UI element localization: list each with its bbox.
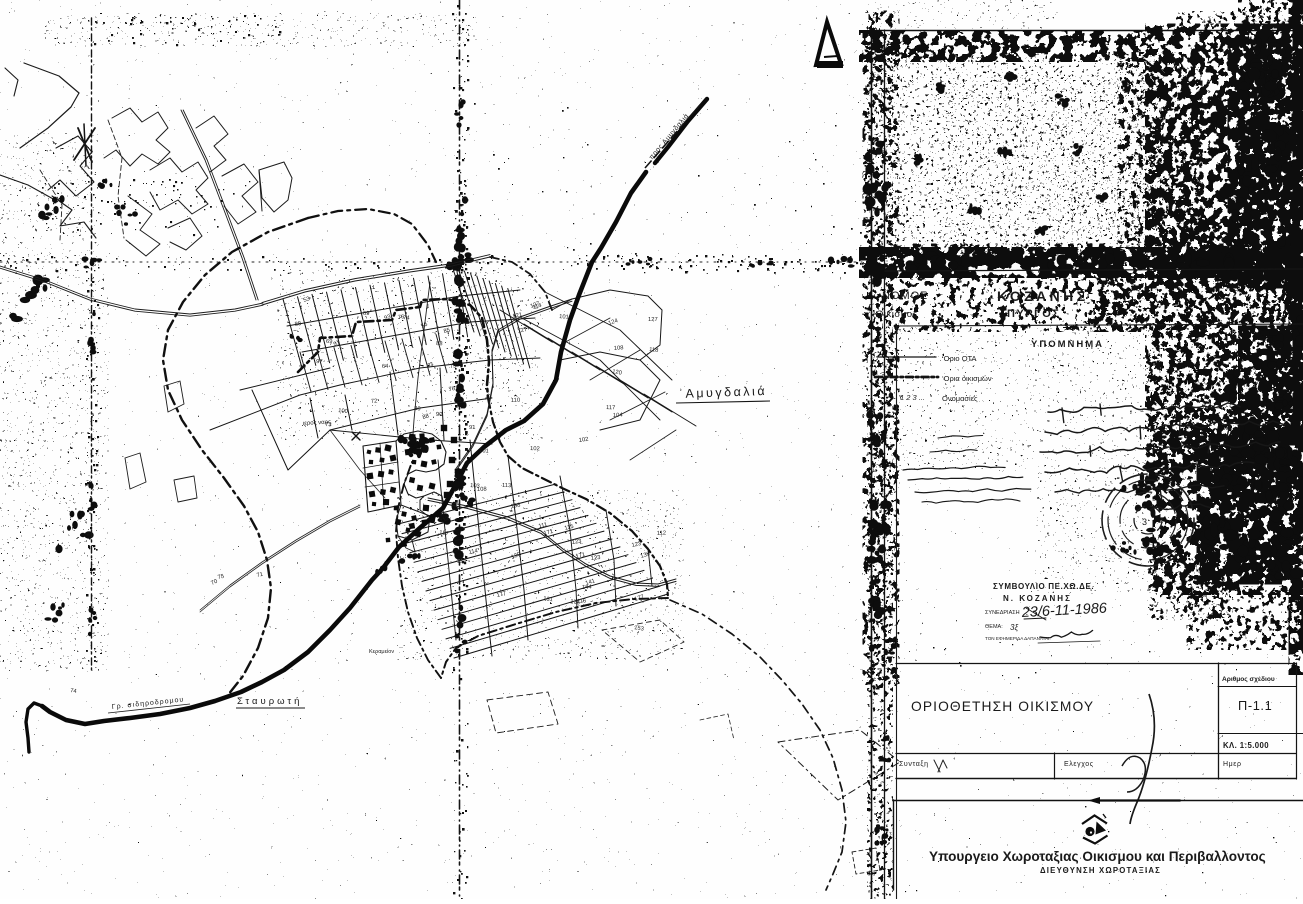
svg-text:ΟΡΙΟΘΕΤΗΣΗ ΟΙΚΙΣΜΟΥ: ΟΡΙΟΘΕΤΗΣΗ ΟΙΚΙΣΜΟΥ <box>911 699 1094 714</box>
svg-text:ΣΥΝΕΔΡΙΑΣΗ: ΣΥΝΕΔΡΙΑΣΗ <box>985 610 1020 616</box>
svg-text:ΠΥΡΓΟΣ: ΠΥΡΓΟΣ <box>1007 308 1060 320</box>
svg-text:90: 90 <box>436 412 443 418</box>
svg-text:Συνταξη: Συνταξη <box>899 761 929 768</box>
svg-text:110: 110 <box>511 398 520 404</box>
svg-text:88: 88 <box>436 341 443 347</box>
svg-text:‘Ορια οικισμών: ‘Ορια οικισμών <box>942 374 992 383</box>
svg-text:ΣΥΜΒΟΥΛΙΟ ΠΕ.ΧΩ.ΔΕ.: ΣΥΜΒΟΥΛΙΟ ΠΕ.ΧΩ.ΔΕ. <box>993 582 1094 591</box>
svg-text:Υπουργειο Χωροταξιας Οικισμου: Υπουργειο Χωροταξιας Οικισμου και Περιβα… <box>929 849 1266 864</box>
svg-text:3: 3 <box>1142 517 1147 527</box>
svg-text:91: 91 <box>469 425 475 431</box>
svg-text:Οικισμος: Οικισμος <box>876 309 918 320</box>
svg-text:80: 80 <box>414 406 421 412</box>
svg-text:Ημερ: Ημερ <box>1223 761 1242 768</box>
svg-text:ΚΛ. 1:5.000: ΚΛ. 1:5.000 <box>1223 741 1269 750</box>
svg-text:73: 73 <box>450 363 457 370</box>
svg-text:108: 108 <box>614 345 624 352</box>
svg-text:Αριθμος σχεδιου: Αριθμος σχεδιου <box>1222 676 1275 683</box>
svg-text:102: 102 <box>530 446 540 452</box>
svg-text:Ν. ΚΟΖΑΝΗΣ: Ν. ΚΟΖΑΝΗΣ <box>1003 594 1072 603</box>
svg-text:108: 108 <box>477 487 487 493</box>
svg-text:ΝΟΜΟΣ: ΝΟΜΟΣ <box>882 290 928 302</box>
svg-text:Κεραμείον: Κεραμείον <box>369 649 394 655</box>
svg-text:123: 123 <box>591 555 601 562</box>
svg-text:72: 72 <box>371 398 378 405</box>
svg-text:69: 69 <box>326 339 332 345</box>
svg-text:69: 69 <box>363 311 370 317</box>
svg-text:144: 144 <box>582 584 593 591</box>
svg-text:113: 113 <box>502 483 511 489</box>
svg-text:Π-1.1: Π-1.1 <box>1238 698 1272 713</box>
svg-text:1 2 3 ...: 1 2 3 ... <box>900 393 925 402</box>
svg-text:88: 88 <box>294 321 301 328</box>
svg-text:104: 104 <box>613 412 624 419</box>
svg-text:112: 112 <box>657 530 667 537</box>
svg-text:ΥΠΟΜΝΗΜΑ: ΥΠΟΜΝΗΜΑ <box>1031 339 1104 350</box>
svg-text:ΚΟΖΑΝΗΣ: ΚΟΖΑΝΗΣ <box>997 288 1088 304</box>
svg-text:101: 101 <box>479 448 489 455</box>
svg-text:100: 100 <box>338 408 348 415</box>
svg-text:Σταυρωτή: Σταυρωτή <box>237 696 302 707</box>
svg-text:‘Οριο ΟΤΑ: ‘Οριο ΟΤΑ <box>942 354 977 363</box>
svg-text:117: 117 <box>606 405 615 411</box>
svg-text:125: 125 <box>457 558 467 565</box>
svg-text:118: 118 <box>649 347 659 354</box>
svg-text:76: 76 <box>448 386 455 393</box>
svg-text:101: 101 <box>559 314 569 321</box>
svg-text:3ξ: 3ξ <box>1010 623 1018 632</box>
svg-text:Ελεγχος: Ελεγχος <box>1064 761 1094 768</box>
svg-text:ΘΕΜΑ:: ΘΕΜΑ: <box>985 624 1003 630</box>
svg-text:ΔΙΕΥΘΥΝΣΗ ΧΩΡΟΤΑΞΙΑΣ: ΔΙΕΥΘΥΝΣΗ ΧΩΡΟΤΑΞΙΑΣ <box>1040 866 1161 875</box>
svg-text:97: 97 <box>316 359 323 365</box>
svg-text:127: 127 <box>648 317 658 323</box>
svg-text:64: 64 <box>382 364 389 370</box>
svg-text:Ονομασίες: Ονομασίες <box>942 394 978 403</box>
